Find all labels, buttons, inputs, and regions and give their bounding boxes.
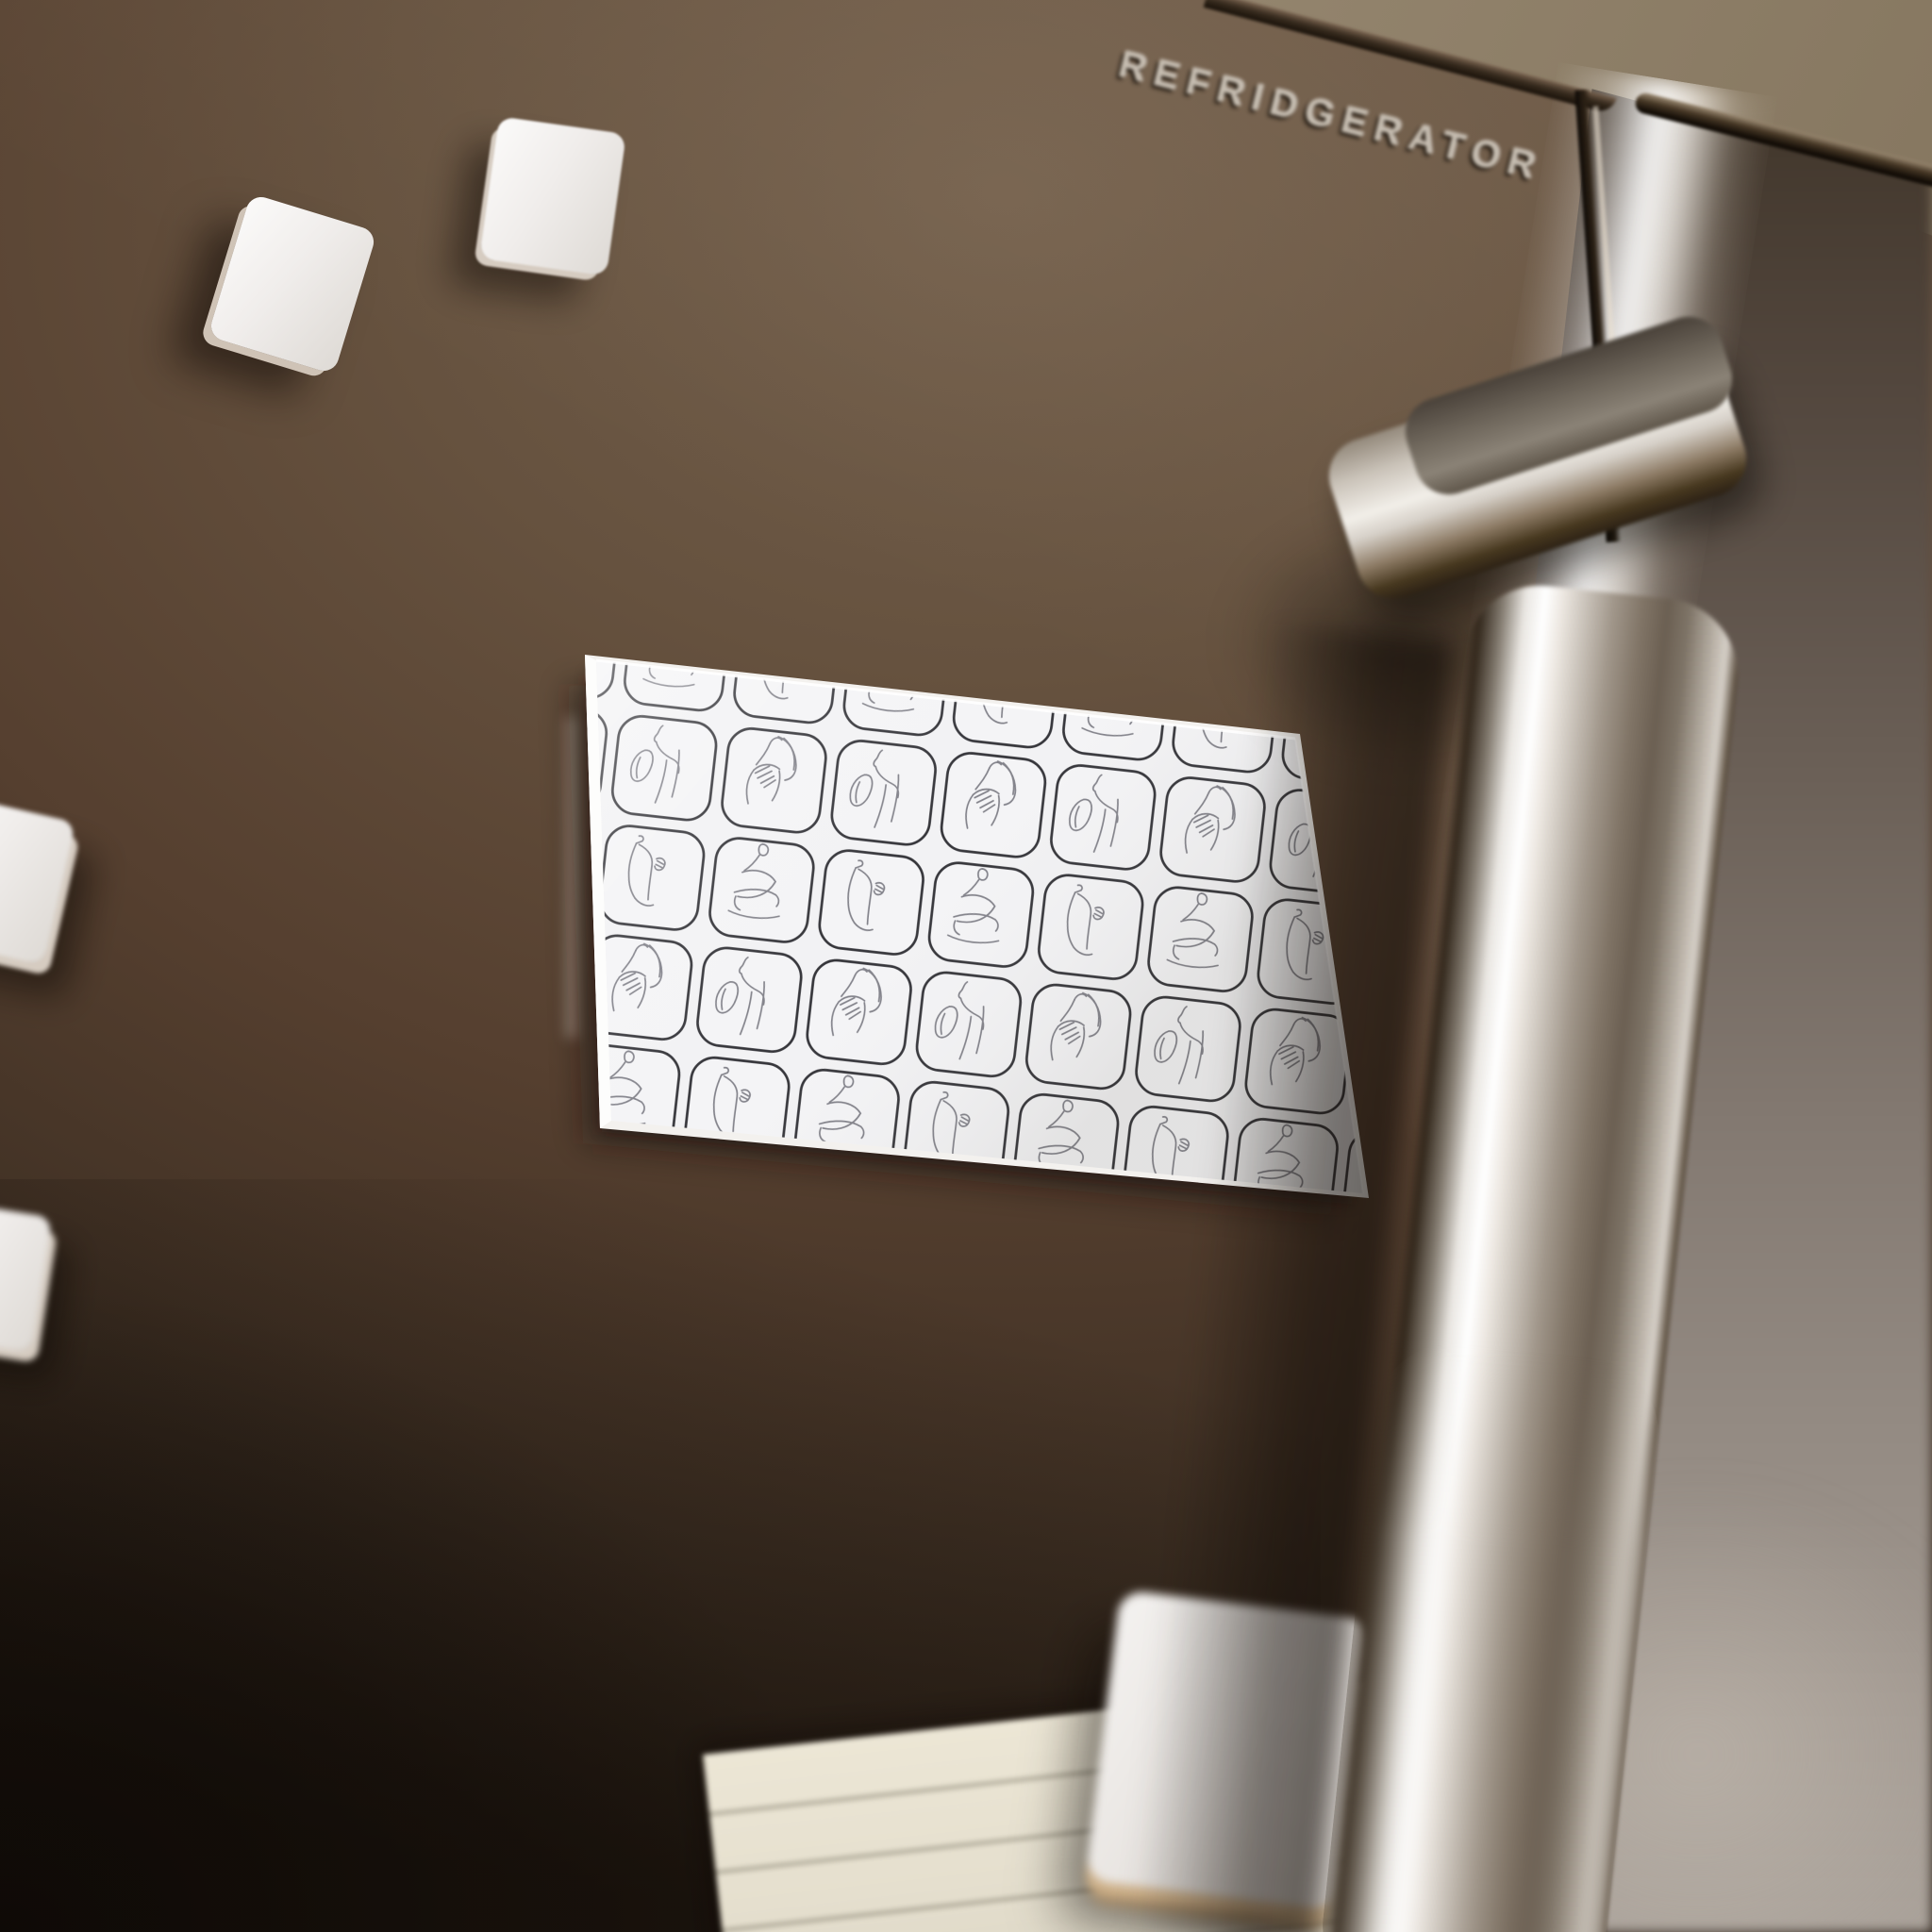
blank-magnet-2 [479,116,626,275]
fridge-scene: REFRIDGERATOR [0,0,1932,1932]
